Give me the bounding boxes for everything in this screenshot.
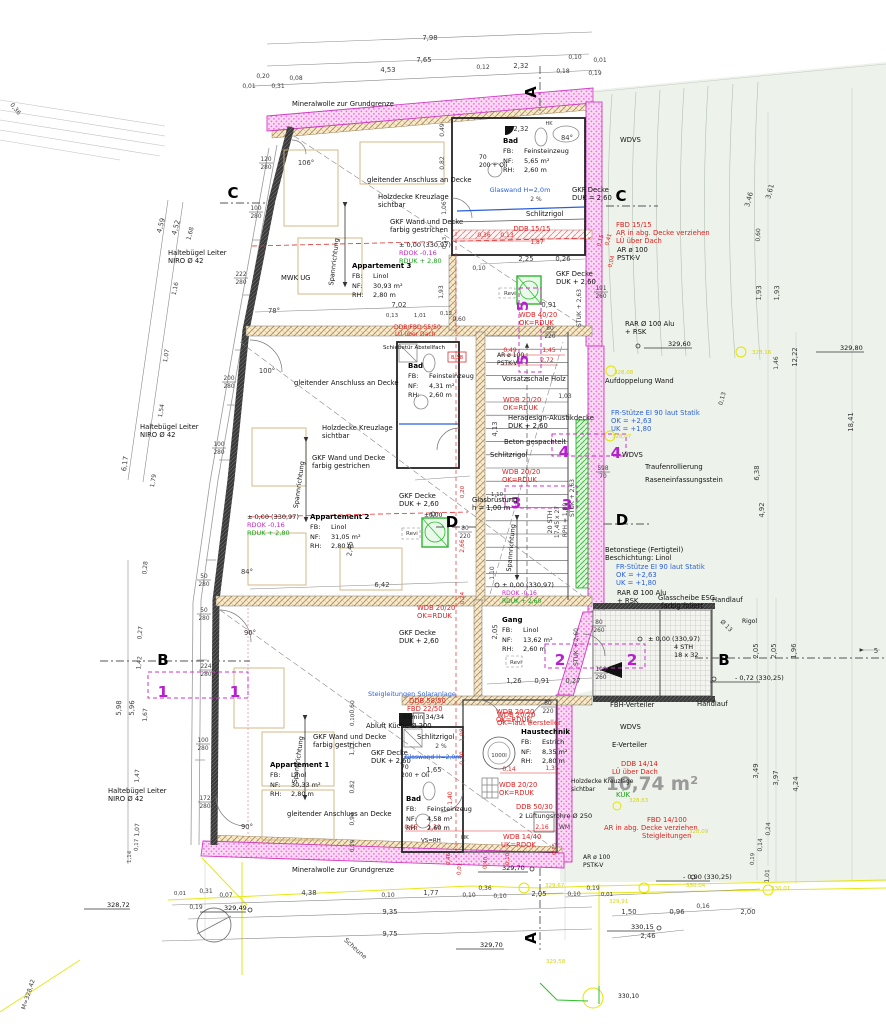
drawing-text: 0,46 [446, 852, 452, 865]
drawing-text: 0,01 [601, 892, 613, 898]
drawing-text: 328,08 [614, 370, 634, 376]
drawing-text: 222 [235, 272, 246, 278]
drawing-text: Schlitzrigol [417, 733, 455, 741]
drawing-text: 330,15 [631, 923, 654, 931]
drawing-text: 200 + Oli [479, 162, 508, 169]
drawing-text: 0,91 [541, 301, 556, 309]
drawing-text: 0,40 [482, 856, 489, 869]
drawing-text: WDVS [622, 451, 643, 459]
drawing-text: 0,10 [472, 265, 486, 272]
drawing-text: Aufdoppelung Wand [605, 377, 674, 385]
drawing-text: 50 [200, 574, 208, 580]
drawing-text: 0,13 [500, 232, 514, 239]
drawing-text: 329,70 [480, 941, 503, 949]
drawing-text: 2,00 [740, 908, 755, 916]
drawing-text: farbig foliert [661, 602, 703, 610]
drawing-text: 0,01 [456, 863, 463, 876]
drawing-text: 0,31 [199, 888, 213, 895]
drawing-text: 260 [595, 294, 606, 300]
drawing-text: 70 [401, 764, 409, 771]
drawing-text: Beton gespachtelt [504, 438, 566, 446]
drawing-text: Betonstiege (Fertigteil) [605, 546, 684, 554]
drawing-text: 0,17 [134, 838, 140, 851]
drawing-text: 0,12 [476, 64, 490, 71]
drawing-text: 1,06 [441, 201, 448, 215]
drawing-text: UK=RDOK [501, 841, 536, 849]
drawing-text: ± 0,00 (330,97) [247, 513, 299, 521]
drawing-text: 328,07 [612, 434, 632, 440]
drawing-text: 280 [260, 165, 271, 171]
drawing-text: Haltebügel Leiter [140, 423, 199, 431]
drawing-text: GKF Wand und Decke [312, 454, 385, 462]
drawing-text: 1,35 [545, 765, 559, 772]
drawing-text: farbig gestrichen [313, 741, 371, 749]
drawing-text: 17,45 x 27 [554, 506, 561, 538]
drawing-text: AR ø 100 [617, 246, 648, 254]
drawing-text: 106° [298, 159, 314, 167]
drawing-text: 0,14 [502, 766, 516, 773]
drawing-text: 9,35 [382, 908, 397, 916]
drawing-text: 200 + Oli [401, 772, 430, 779]
drawing-text: Glaswand H=2,0m [490, 186, 551, 194]
drawing-text: VS=RH [421, 838, 441, 844]
drawing-text: 1,77 [423, 889, 438, 897]
drawing-text: 328,09 [689, 829, 709, 835]
drawing-text: Schiebetür Abstellfach [383, 345, 445, 351]
drawing-text: 84° [561, 134, 573, 142]
floor-plan-svg: 1912608022080220802208026010026059870120… [0, 0, 886, 1024]
drawing-text: RAR Ø 100 Alu [617, 589, 666, 597]
drawing-text: AR ø 100 [583, 854, 610, 861]
drawing-text: 0,19 [586, 885, 600, 892]
drawing-text: 0,10 [462, 892, 476, 899]
drawing-text: DDB 14/14 [621, 760, 658, 768]
drawing-text: Holzdecke Kreuzlage [322, 424, 393, 432]
drawing-text: - 0,90 (330,25) [683, 873, 732, 881]
drawing-text: RDUK + 2,80 [399, 257, 442, 265]
drawing-text: OK=RDUK [499, 789, 534, 797]
drawing-text: DUK + 2,60 [399, 500, 439, 508]
drawing-text: 260 [595, 675, 606, 681]
drawing-text: 1,96 [790, 643, 798, 658]
drawing-text: 2,32 [513, 62, 528, 70]
drawing-text: 328,16 [752, 350, 772, 356]
drawing-text: 3,49 [752, 763, 760, 778]
drawing-text: 220 [542, 709, 553, 715]
drawing-text: RAR Ø 100 Alu [625, 320, 674, 328]
drawing-text: 0,01 [593, 57, 607, 64]
drawing-text: 0,91 [534, 677, 549, 685]
drawing-text: WDVS [620, 136, 641, 144]
drawing-text: 100 [197, 738, 208, 744]
drawing-text: GKF Decke [556, 270, 593, 278]
drawing-text: D [616, 511, 628, 529]
drawing-text: 1,03 [558, 393, 572, 400]
drawing-text: gleitender Anschluss an Decke [367, 176, 472, 184]
drawing-text: 100 [250, 206, 261, 212]
drawing-text: WDB 40/20 [519, 311, 557, 319]
drawing-text: gleitender Anschluss an Decke [294, 379, 399, 387]
drawing-text: + RSK [617, 597, 639, 605]
drawing-text: 0,10 [381, 892, 395, 899]
drawing-text: NIRO Ø 42 [108, 795, 143, 803]
drawing-text: 280 [250, 214, 261, 220]
drawing-text: 1000l [491, 753, 507, 759]
floor-plan-stage: 1912608022080220802208026010026059870120… [0, 0, 886, 1024]
drawing-text: 0,24 [765, 822, 772, 836]
drawing-text: GKF Decke [399, 492, 436, 500]
drawing-text: 0,94 [349, 812, 356, 826]
drawing-text: 329,49 [224, 904, 247, 912]
green-wall-strip [576, 420, 588, 588]
drawing-text: 329,91 [609, 899, 628, 905]
drawing-text: 1,93 [755, 285, 764, 300]
drawing-text: 80 [544, 701, 552, 707]
drawing-text: 0,01 [242, 83, 256, 90]
drawing-text: 5,96 [128, 700, 137, 715]
drawing-text: 1,42 [135, 656, 143, 670]
drawing-text: 191 [595, 286, 606, 292]
drawing-text: 0,16 [696, 903, 710, 910]
drawing-text: FBH-Verteiler [610, 701, 655, 709]
drawing-text: 0,60 [755, 228, 762, 242]
drawing-text: DUK + 2,60 [508, 422, 548, 430]
drawing-text: 0,60 [349, 700, 356, 714]
drawing-text: 90° [241, 823, 253, 831]
drawing-text: 1 [158, 683, 169, 701]
drawing-text: RPH = 1,80 [562, 503, 569, 538]
drawing-text: 2,05 [770, 643, 778, 658]
drawing-text: 280 [200, 672, 211, 678]
drawing-text: HK [545, 121, 553, 127]
drawing-text: ± 0,00 (330,97) [648, 635, 700, 643]
drawing-text: 7,98 [422, 34, 437, 42]
drawing-text: 0,20 [460, 485, 466, 498]
drawing-text: gleitender Anschluss an Decke [287, 810, 392, 818]
drawing-text: 1,87 [530, 239, 544, 246]
drawing-text: 1,14 [127, 850, 133, 863]
drawing-text: Abluft Küche Ø 200 [366, 722, 432, 730]
drawing-text: 0,10 [350, 713, 356, 726]
drawing-text: Handlauf [697, 700, 728, 708]
drawing-text: 4,53 [380, 66, 395, 74]
drawing-text: OK = +2,63 [611, 417, 652, 425]
drawing-text: Holzdecke Kreuzlage [571, 778, 634, 785]
drawing-text: 2,72 [540, 357, 554, 364]
drawing-text: PSTK-V [497, 360, 518, 367]
drawing-text: 1,98 [459, 728, 466, 742]
drawing-text: Schlitzrigol [490, 451, 528, 459]
drawing-text: 329,58 [546, 959, 566, 965]
drawing-text: 0,19 [350, 839, 356, 852]
drawing-text: NIRO Ø 42 [140, 431, 175, 439]
drawing-text: 0,08 [289, 75, 303, 82]
drawing-text: Haltebügel Leiter [108, 787, 167, 795]
drawing-text: farbig gestrichen [312, 462, 370, 470]
drawing-text: 120 [260, 157, 271, 163]
drawing-text: 330,04 [686, 883, 706, 889]
drawing-text: GKF Wand und Decke [390, 218, 463, 226]
drawing-text: 0,18 [556, 68, 570, 75]
drawing-text: 200 [223, 376, 234, 382]
drawing-text: C [227, 184, 238, 202]
drawing-text: 1,10 [489, 566, 496, 580]
drawing-text: 2 % [435, 743, 447, 750]
drawing-text: Kamin 34/34 [403, 713, 444, 721]
drawing-text: DDB 58/50 [409, 697, 446, 705]
drawing-text: 0,27 [136, 626, 144, 640]
drawing-text: DUK + 2,60 [399, 637, 439, 645]
drawing-text: 220 [544, 334, 555, 340]
drawing-text: OK=laut Hersteller [497, 719, 561, 727]
drawing-text: FR-Stütze EI 90 laut Statik [616, 563, 705, 571]
drawing-text: 50 [200, 608, 208, 614]
drawing-text: 0,96 [669, 908, 684, 916]
drawing-text: 598 [597, 466, 608, 472]
drawing-text: Vorsatzschale Holz [502, 375, 566, 383]
drawing-text: 0,27 [565, 677, 580, 685]
drawing-text: 280 [213, 450, 224, 456]
drawing-text: Haltebügel Leiter [168, 249, 227, 257]
drawing-text: WDB 20/20 [497, 711, 535, 719]
drawing-text: 2,32 [513, 125, 528, 133]
drawing-text: 7,02 [391, 301, 406, 309]
drawing-text: 80 [595, 620, 603, 626]
drawing-text: AR in abg. Decke verziehen [604, 824, 698, 832]
drawing-text: Rigol [742, 618, 757, 625]
drawing-text: 224 [200, 664, 211, 670]
drawing-text: AR in abg. Decke verziehen [616, 229, 710, 237]
drawing-text: 0,14 [757, 838, 764, 852]
drawing-text: 0,13 [442, 236, 448, 249]
drawing-text: 0,60 [452, 316, 466, 323]
drawing-text: STUK + 2,60 [573, 628, 580, 666]
drawing-text: 12,22 [791, 347, 799, 366]
drawing-text: Steigleitungen [642, 832, 691, 840]
drawing-text: 280 [223, 384, 234, 390]
drawing-text: 0,13 [386, 313, 399, 319]
drawing-text: 4 STH [674, 643, 693, 651]
drawing-text: WDB 20/20 [499, 781, 537, 789]
drawing-text: 70 [479, 154, 487, 161]
drawing-text: UK = +1,80 [616, 579, 656, 587]
drawing-text: + RSK [625, 328, 647, 336]
drawing-text: 330,01 [771, 886, 790, 892]
drawing-text: 3,97 [772, 770, 780, 785]
drawing-text: 0,77 [503, 498, 516, 504]
drawing-text: 4,38 [301, 889, 316, 897]
drawing-text: 0,24 [460, 591, 466, 604]
right-wall-upper [586, 102, 602, 346]
drawing-text: sichtbar [378, 201, 406, 209]
drawing-text: FR-Stütze EI 90 laut Statik [611, 409, 700, 417]
drawing-text: A [522, 932, 540, 944]
drawing-text: 0,10 [568, 54, 582, 61]
drawing-text: 280 [198, 616, 209, 622]
drawing-text: OK=RDUK [519, 319, 554, 327]
drawing-text: E-Verteiler [612, 741, 647, 749]
drawing-text: 1,30 [427, 824, 441, 831]
drawing-text: 1,50 [621, 908, 636, 916]
drawing-text: NIRO Ø 42 [168, 257, 203, 265]
drawing-text: 1,10 [491, 492, 504, 498]
drawing-text: GKF Wand und Decke [313, 733, 386, 741]
drawing-text: 0,82 [349, 780, 356, 794]
drawing-text: 0,20 [256, 73, 270, 80]
terrain-background [0, 0, 886, 1024]
drawing-text: 1,47 [134, 769, 141, 783]
drawing-text: 1,07 [134, 823, 141, 837]
drawing-text: B [718, 651, 729, 669]
drawing-text: WDB 20/20 [417, 604, 455, 612]
drawing-text: 220 [459, 534, 470, 540]
drawing-text: 0,15 [552, 842, 558, 855]
drawing-text: 280 [198, 582, 209, 588]
drawing-text: Raseneinfassungsstein [645, 476, 723, 484]
drawing-text: 0,19 [588, 70, 602, 77]
drawing-text: 2,05 [491, 624, 500, 639]
drawing-text: 7,65 [416, 56, 431, 64]
drawing-text: 1,93 [773, 285, 782, 300]
drawing-text: OK = +2,63 [616, 571, 657, 579]
drawing-text: PSTK-V [617, 254, 640, 262]
drawing-text: HK [461, 835, 469, 841]
drawing-text: 0,19 [750, 852, 756, 865]
drawing-text: 2 Lüftungsrohre Ø 250 [519, 812, 592, 820]
drawing-text: 330,10 [618, 993, 639, 1000]
drawing-text: 260 [593, 628, 604, 634]
drawing-text: A [522, 86, 540, 98]
drawing-text: 280 [235, 280, 246, 286]
drawing-text: 328,72 [107, 901, 130, 909]
drawing-text: PSTK-V [583, 862, 604, 869]
drawing-text: GKF Decke [371, 749, 408, 757]
drawing-text: 6,42 [374, 581, 389, 589]
drawing-text: 0,28 [141, 561, 149, 575]
drawing-text: 90° [244, 629, 256, 637]
drawing-text: Glasscheibe ESG [658, 594, 715, 602]
drawing-text: Revi [406, 531, 418, 537]
drawing-text: LÜ über Dach [616, 236, 662, 245]
drawing-text: GKF Decke [399, 629, 436, 637]
drawing-text: Mineralwolle zur Grundgrenze [292, 100, 394, 108]
drawing-text: MWK UG [281, 274, 310, 282]
drawing-text: 8/58 [451, 355, 464, 361]
drawing-text: 5 [874, 647, 878, 655]
drawing-text: 0,49 [439, 123, 446, 137]
drawing-text: 1,17 [349, 742, 356, 756]
drawing-text: sichtbar [571, 786, 596, 793]
drawing-text: 100 [595, 667, 606, 673]
drawing-text: 0,20 [459, 751, 466, 765]
drawing-text: 2,45 [345, 541, 354, 557]
drawing-text: WM [559, 824, 570, 831]
drawing-text: 0,12 [440, 311, 452, 317]
drawing-text: GKF Decke [572, 186, 609, 194]
drawing-text: B [157, 651, 168, 669]
drawing-text: 1,26 [506, 677, 521, 685]
drawing-text: 329,60 [668, 340, 691, 348]
drawing-text: FBD 15/15 [616, 221, 652, 229]
drawing-text: C [615, 187, 626, 205]
drawing-text: 0,36 [477, 232, 491, 239]
drawing-text: RDUK + 2,80 [247, 529, 290, 537]
drawing-text: Holzdecke Kreuzlage [378, 193, 449, 201]
drawing-text: 0,05 [404, 824, 418, 831]
drawing-text: 2,25 [518, 255, 533, 263]
drawing-text: 2,16 [535, 824, 549, 831]
drawing-text: WDB 20/20 [503, 396, 541, 404]
drawing-text: OK=RDUK [502, 476, 537, 484]
drawing-text: 20 STH [546, 510, 554, 533]
drawing-text: Traufenrollierung [644, 463, 703, 471]
drawing-text: 0,01 [174, 891, 186, 897]
drawing-text: ±0,00 [424, 512, 443, 519]
drawing-text: 70 [599, 474, 607, 480]
drawing-text: sichtbar [322, 432, 350, 440]
drawing-text: Glaswand H=2,0m [405, 754, 461, 761]
drawing-text: 0,49 [503, 347, 517, 354]
drawing-text: 9,75 [382, 930, 397, 938]
drawing-text: 2,05 [752, 643, 760, 658]
drawing-text: 280 [197, 746, 208, 752]
drawing-text: Revi [510, 660, 522, 666]
drawing-text: 329,80 [840, 344, 863, 352]
drawing-text: 1,01 [414, 313, 426, 319]
drawing-text: OK=RDUK [417, 612, 452, 620]
drawing-text: 4,13 [491, 421, 499, 436]
drawing-text: 329,67 [545, 883, 565, 889]
drawing-text: FBD 22/50 [407, 705, 443, 713]
drawing-text: 0,36 [478, 885, 492, 892]
drawing-text: Beschichtung: Linol [605, 554, 672, 562]
drawing-text: DDB 15/15 [514, 225, 551, 233]
drawing-text: 0,19 [189, 904, 203, 911]
drawing-text: 1,67 [142, 708, 149, 722]
drawing-text: h = 1,00 m [472, 504, 511, 512]
drawing-text: WDB 20/20 [502, 468, 540, 476]
drawing-text: - 0,72 (330,25) [735, 674, 784, 682]
drawing-text: 0,10 [493, 893, 507, 900]
drawing-text: 0,10 [567, 891, 581, 898]
drawing-text: 2 % [530, 196, 542, 203]
drawing-text: STUK + 2,63 [569, 479, 576, 517]
drawing-text: 0,82 [439, 156, 446, 170]
drawing-text: FBD 14/100 [647, 816, 687, 824]
drawing-text: 100 [213, 442, 224, 448]
drawing-text: 78° [268, 307, 280, 315]
drawing-text: 328,63 [629, 798, 649, 804]
drawing-text: 1,01 [764, 869, 771, 883]
drawing-text: DUK = 2,60 [572, 194, 612, 202]
drawing-text: 1,65 [426, 766, 441, 774]
drawing-text: WDVS [620, 723, 641, 731]
drawing-text: 1 [230, 683, 241, 701]
drawing-text: Heradesign-Akustikdecke [508, 414, 594, 422]
drawing-text: 1,45 [542, 347, 556, 354]
drawing-text: DUK + 2,60 [556, 278, 596, 286]
drawing-text: D [446, 513, 458, 531]
drawing-text: 2,46 [640, 932, 655, 940]
drawing-text: RDOK -0,16 [399, 249, 437, 257]
drawing-text: OK=RDUK [503, 404, 538, 412]
drawing-text: Handlauf [712, 596, 743, 604]
drawing-text: 2,05 [531, 890, 546, 898]
drawing-text: 329,70 [502, 864, 525, 872]
drawing-text: RDOK -0,16 [502, 590, 537, 597]
drawing-text: Mineralwolle zur Grundgrenze [292, 866, 394, 874]
drawing-text: 84° [241, 568, 253, 576]
